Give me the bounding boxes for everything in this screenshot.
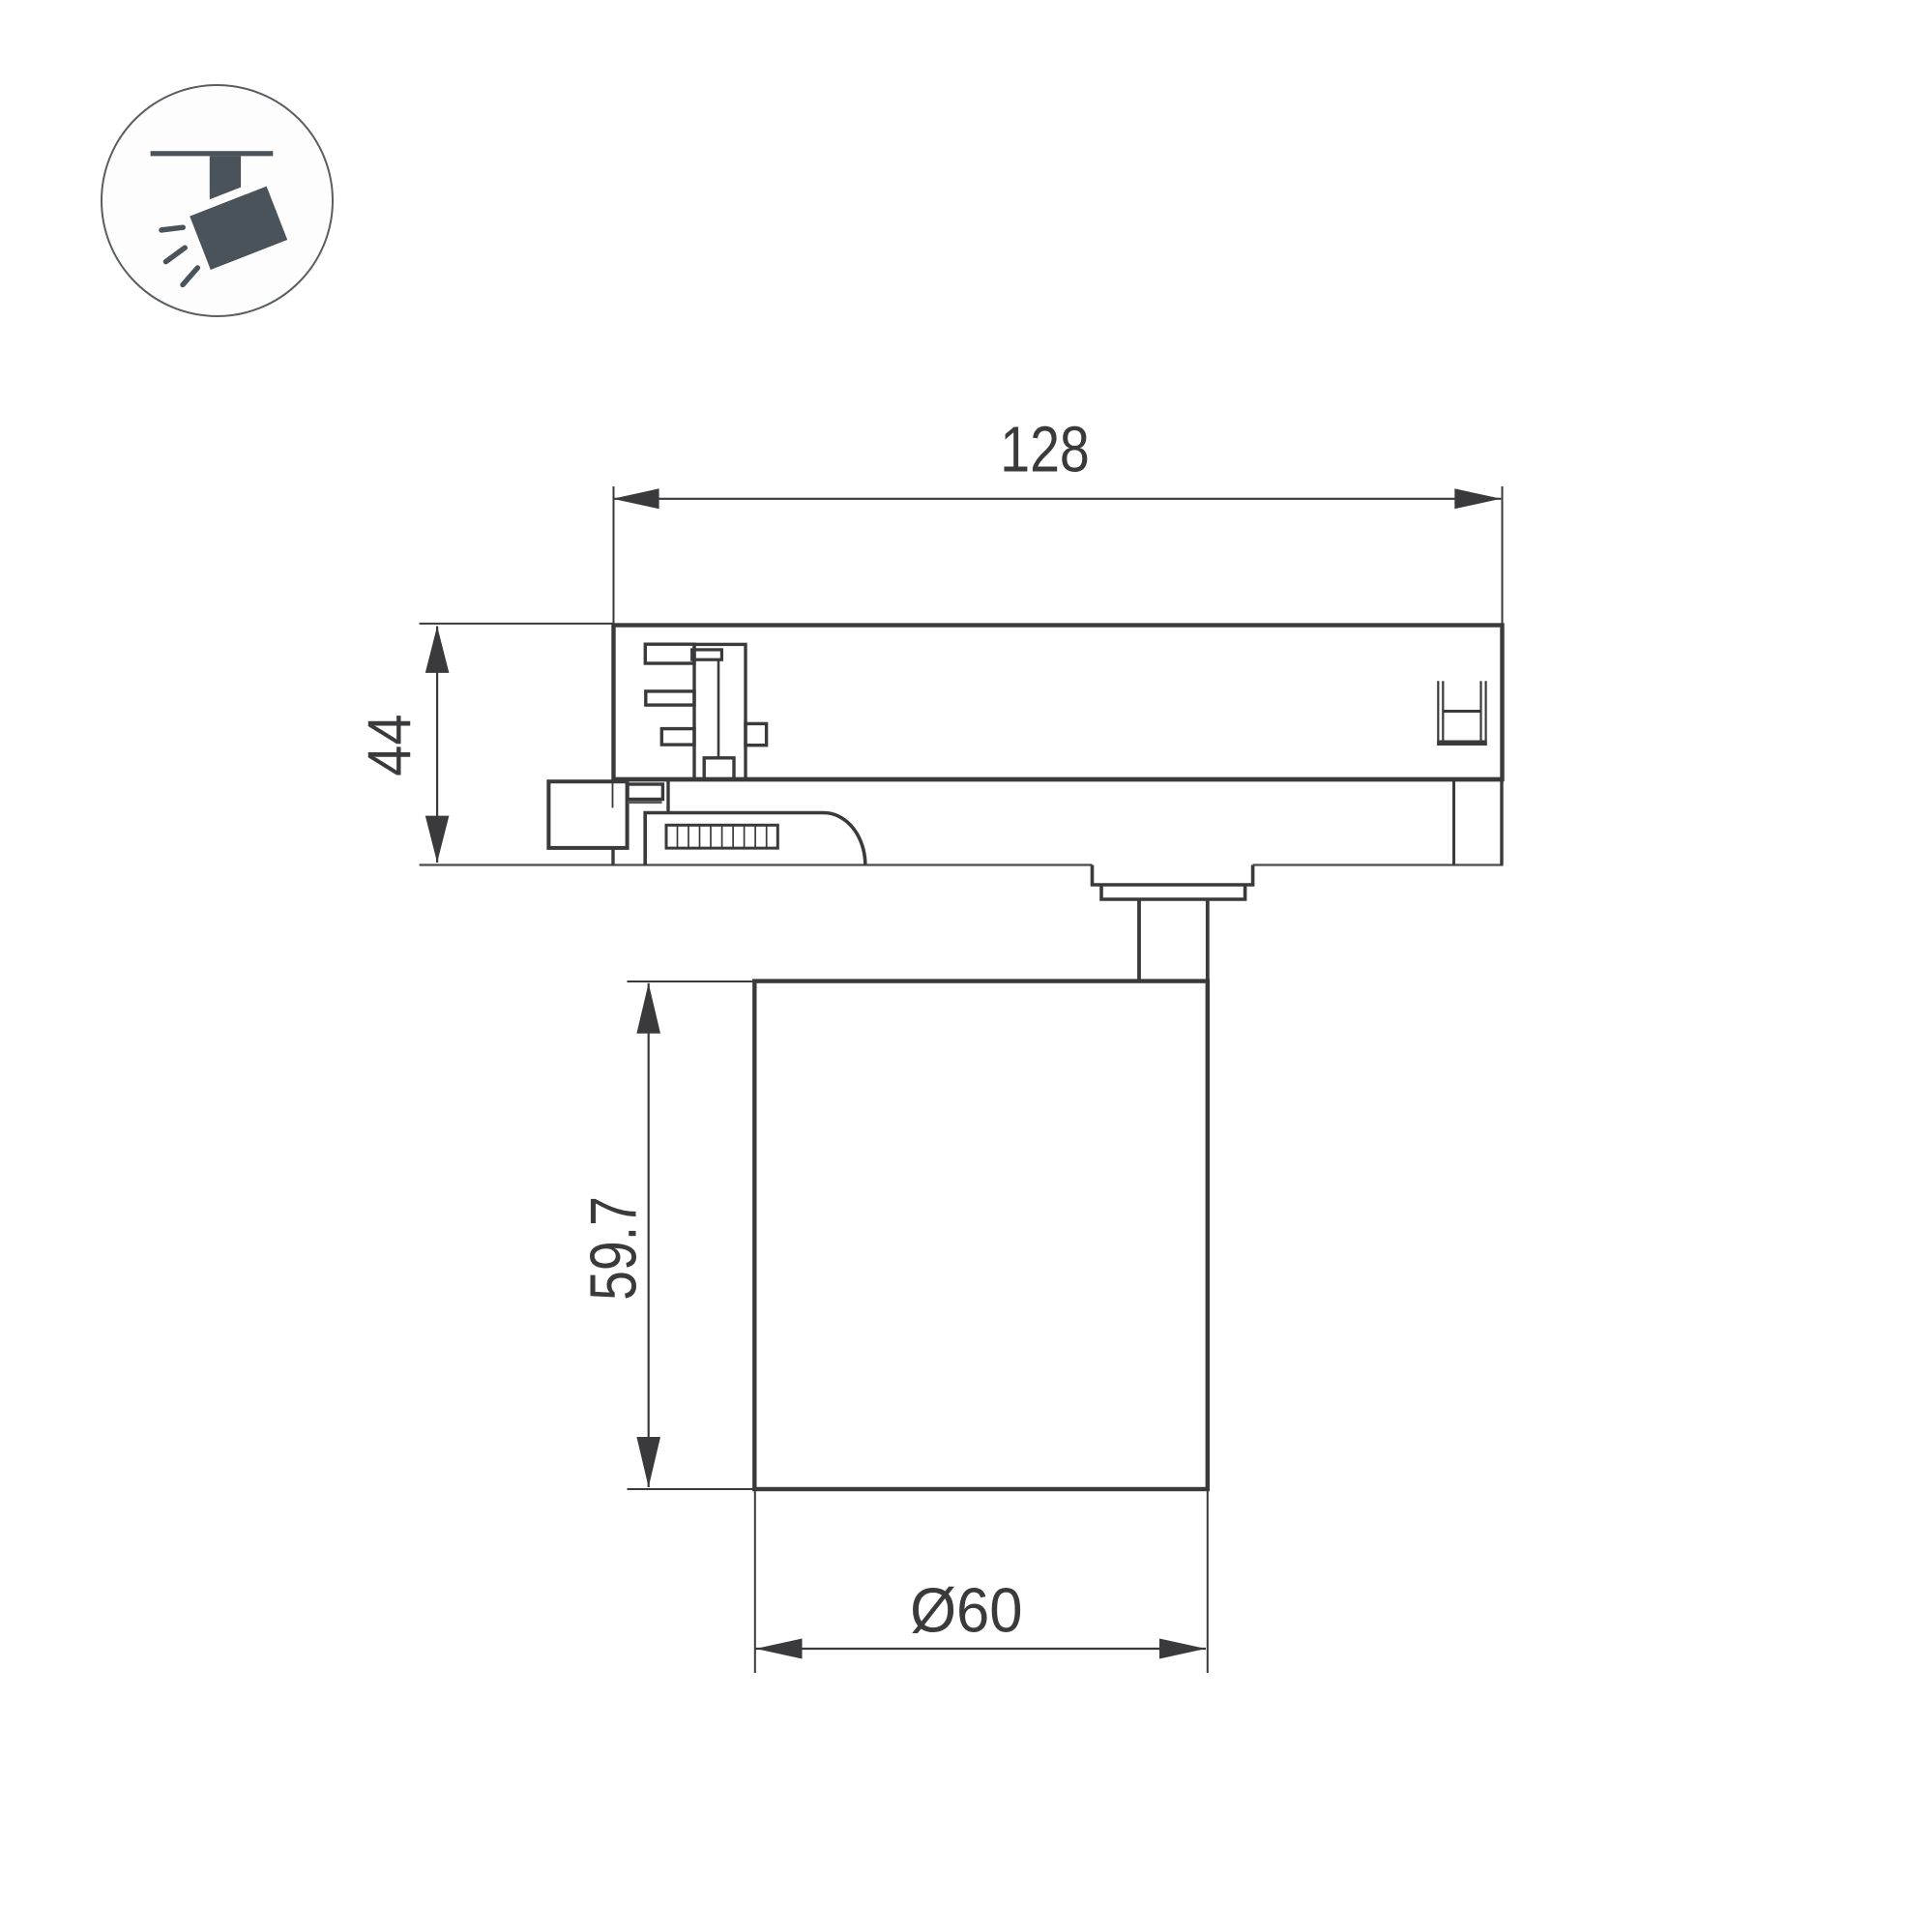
svg-text:128: 128 — [1000, 414, 1090, 486]
svg-text:Ø60: Ø60 — [910, 1576, 1022, 1646]
svg-text:59.7: 59.7 — [577, 1196, 651, 1301]
svg-text:44: 44 — [355, 714, 424, 776]
